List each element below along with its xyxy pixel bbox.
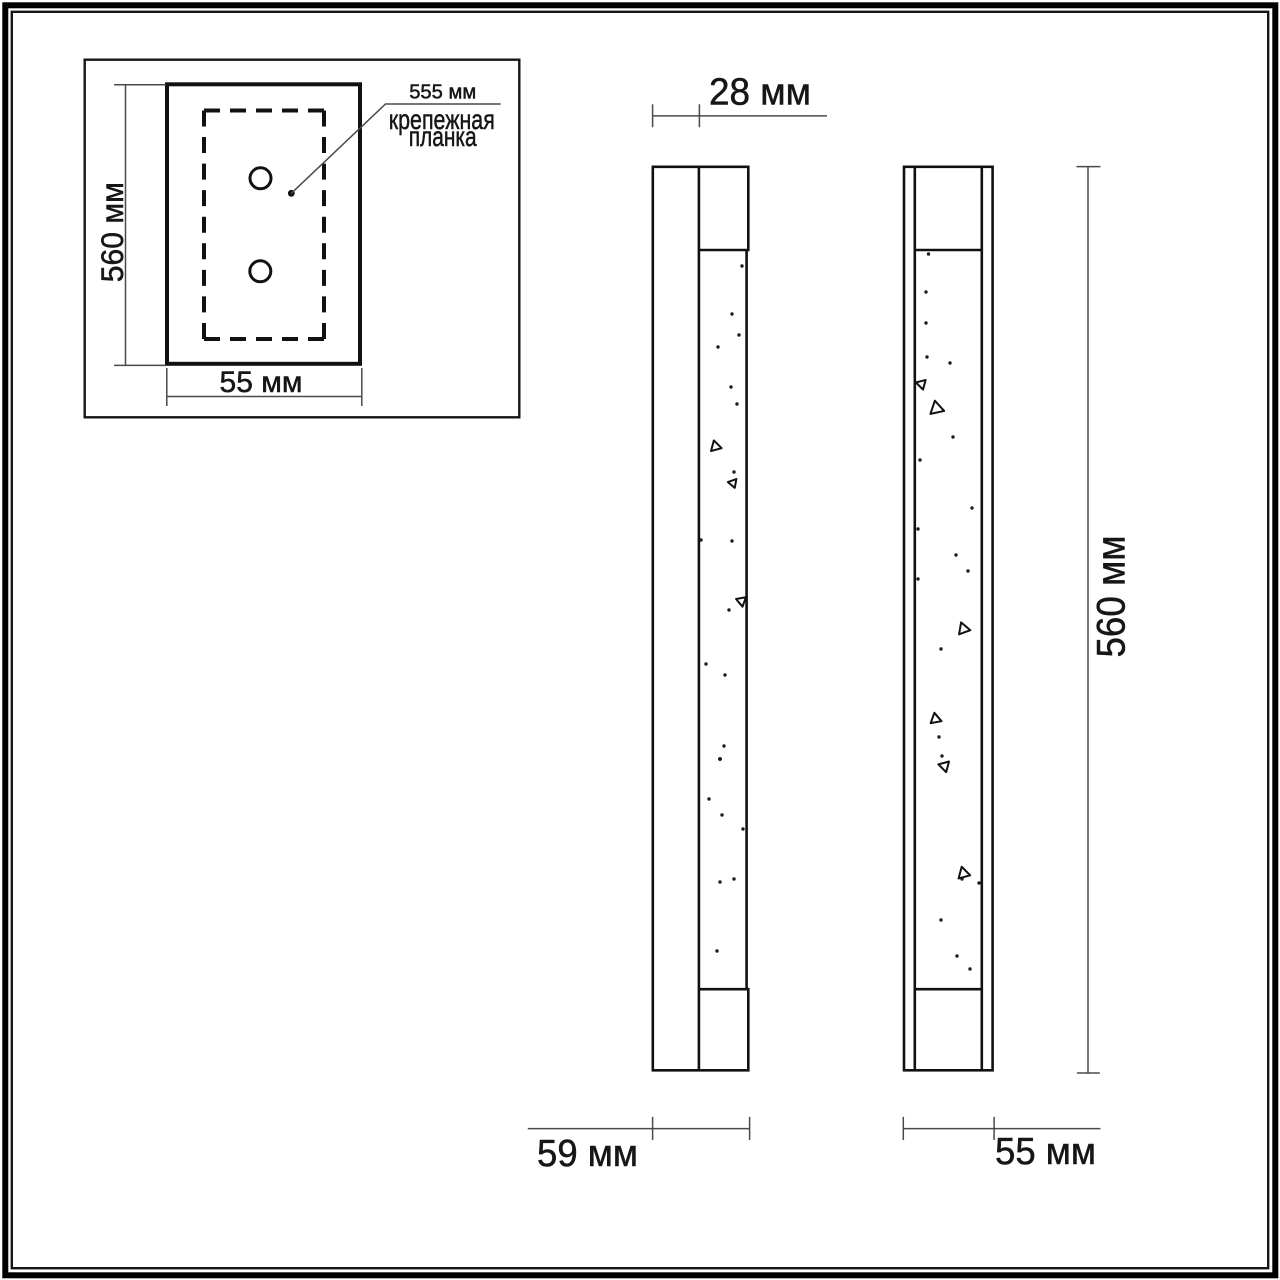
svg-text:560 мм: 560 мм [94,182,130,282]
svg-text:планка: планка [409,121,477,152]
svg-text:560 мм: 560 мм [1090,536,1134,658]
svg-text:55 мм: 55 мм [995,1131,1096,1173]
svg-text:59 мм: 59 мм [537,1133,638,1175]
svg-text:28 мм: 28 мм [709,72,811,114]
svg-text:55 мм: 55 мм [220,366,303,399]
svg-text:555 мм: 555 мм [409,80,476,103]
